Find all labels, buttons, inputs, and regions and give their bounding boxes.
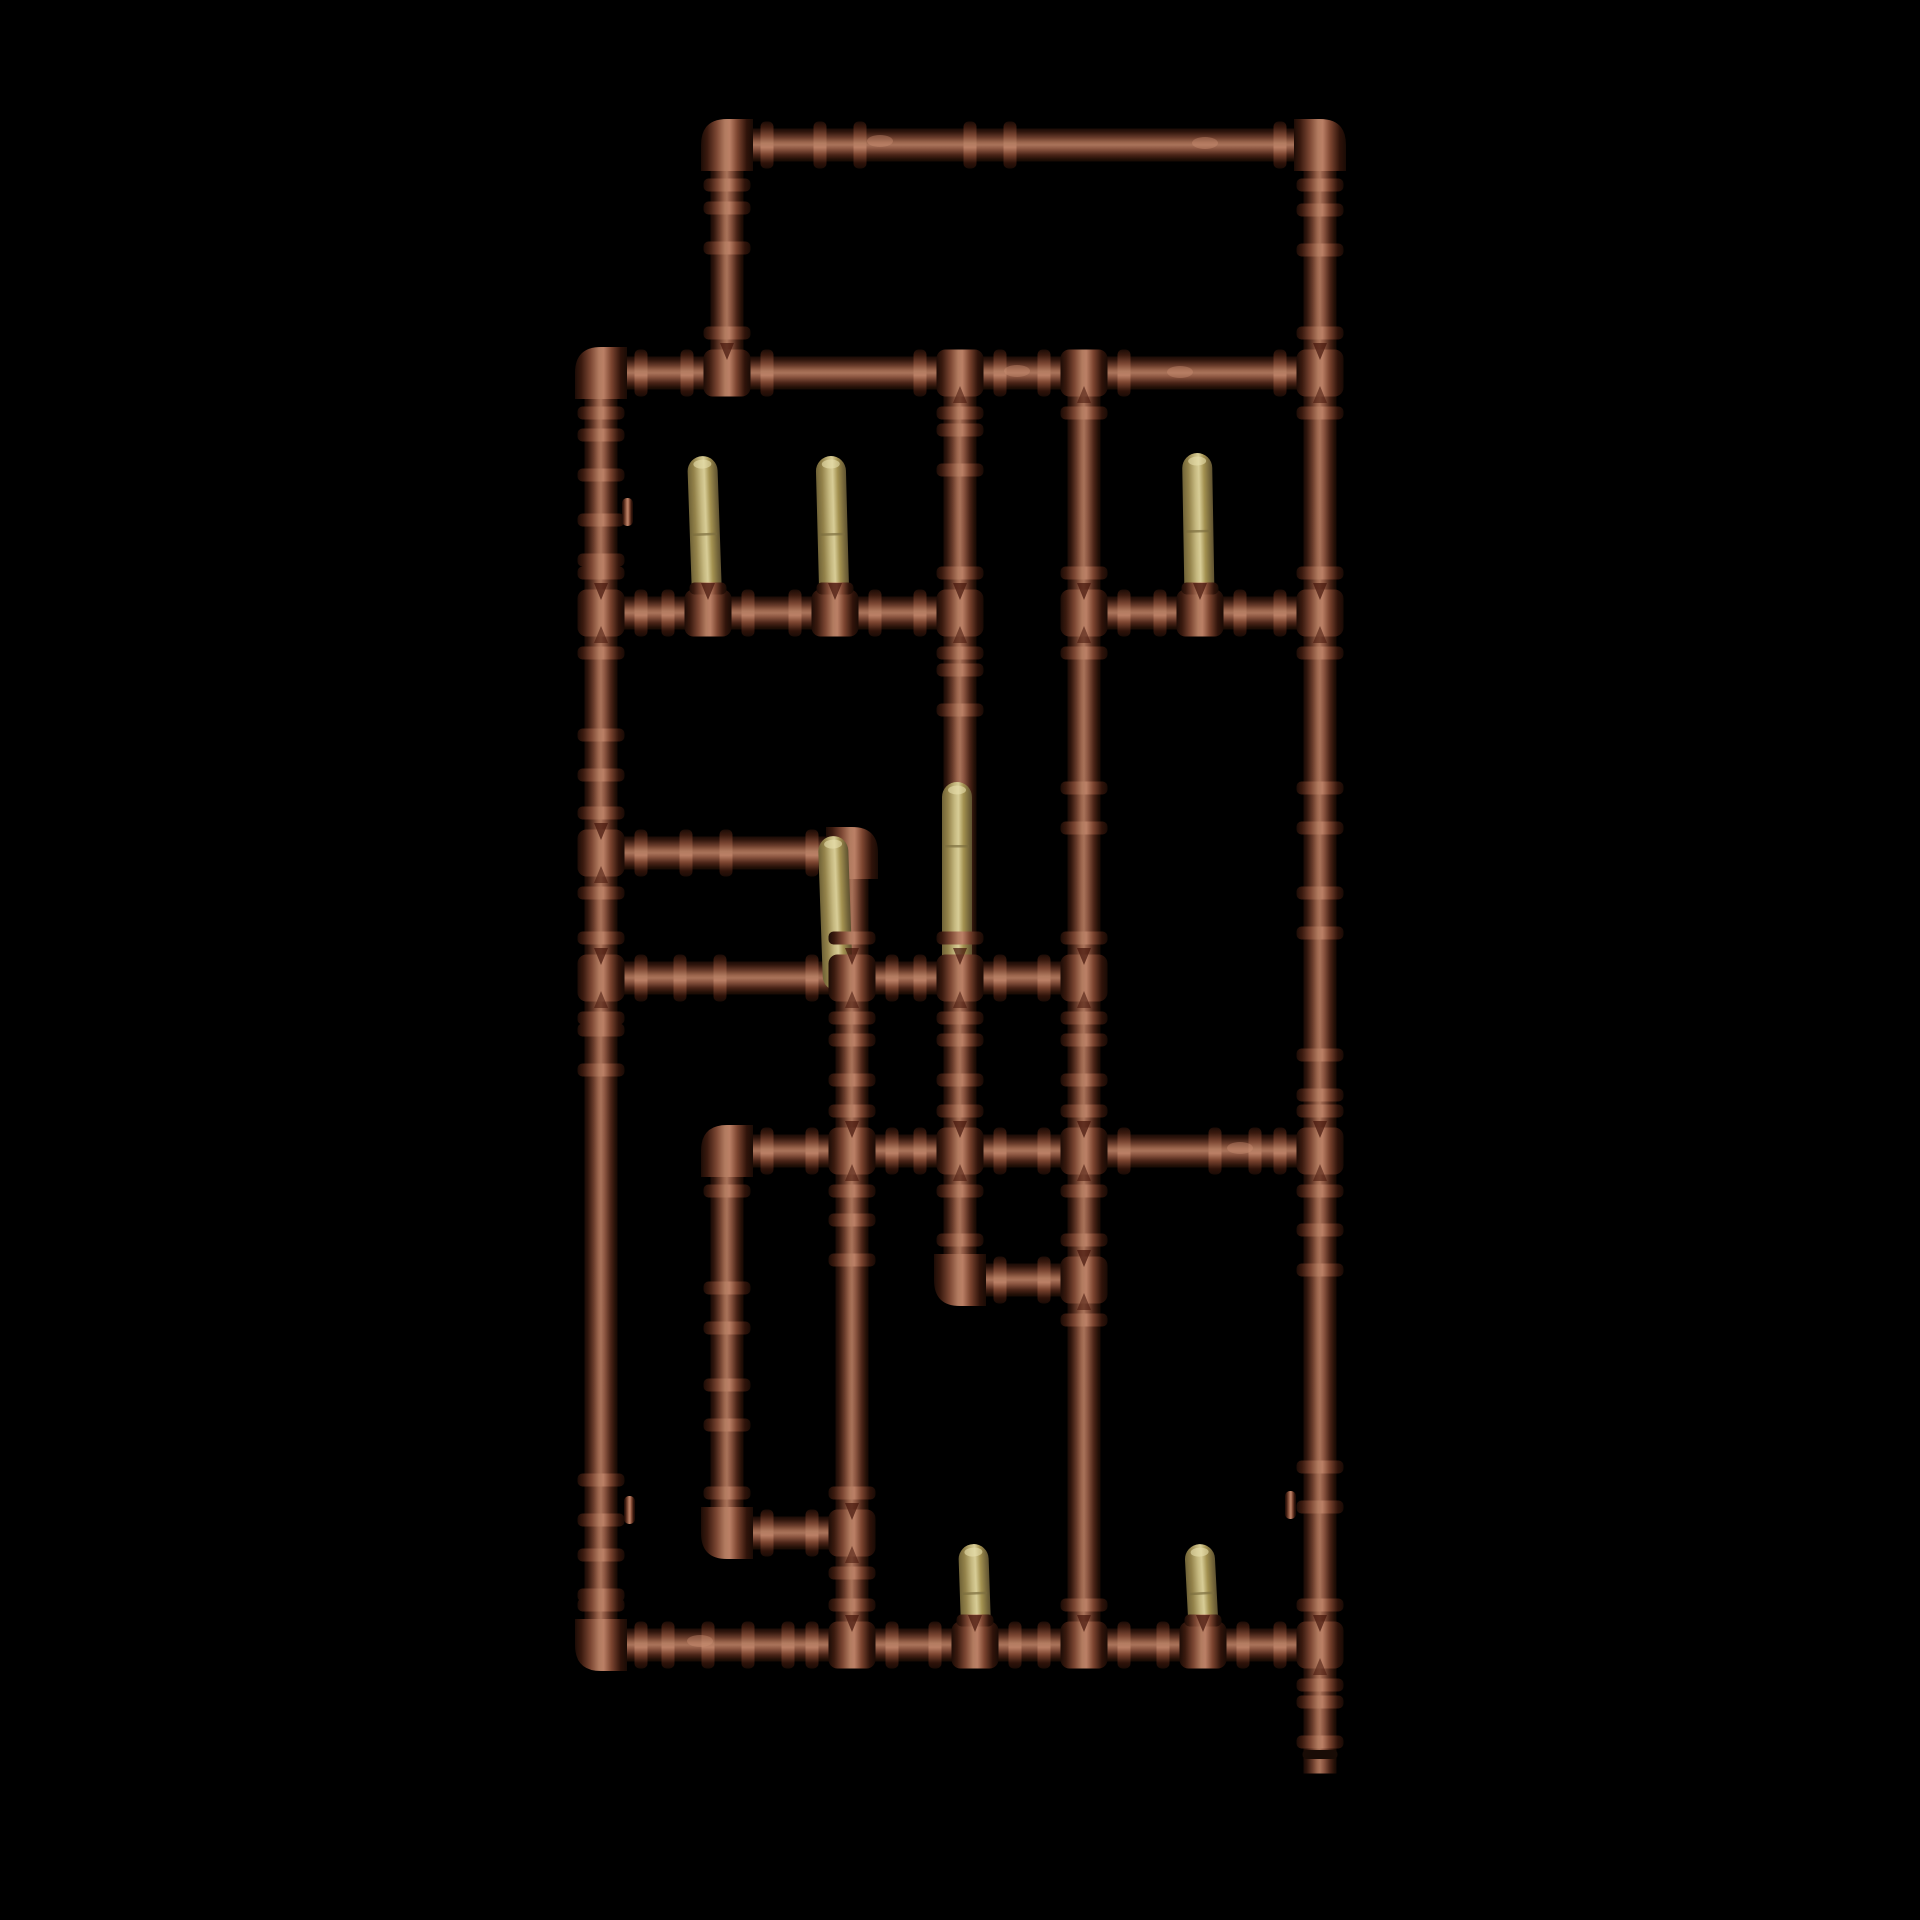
fitting-collar (1038, 1257, 1051, 1304)
fitting-collar (1274, 1128, 1287, 1175)
specular-highlight (1004, 365, 1030, 377)
fitting-collar (704, 202, 751, 215)
fitting-collar (937, 1234, 984, 1247)
fitting-collar (829, 1074, 876, 1087)
elbow-fitting (701, 119, 753, 171)
fitting-collar (662, 590, 675, 637)
fitting-collar (937, 424, 984, 437)
fitting-collar (1061, 1034, 1108, 1047)
fitting-collar (806, 1128, 819, 1175)
fitting-collar (1274, 350, 1287, 397)
fitting-collar (1297, 1501, 1344, 1514)
fitting-collar (937, 1012, 984, 1025)
brass-stub-seam (945, 845, 969, 848)
pipe-render-figure (0, 0, 1920, 1920)
fitting-collar (1297, 327, 1344, 340)
fitting-collar (578, 567, 625, 580)
fitting-collar (1297, 1224, 1344, 1237)
fitting-collar (578, 554, 625, 567)
fitting-collar (1038, 1128, 1051, 1175)
fitting-collar (578, 514, 625, 527)
fitting-collar (1118, 590, 1131, 637)
fitting-collar (578, 807, 625, 820)
fitting-collar (1061, 822, 1108, 835)
fitting-collar (1297, 1264, 1344, 1277)
fitting-collar (1061, 1074, 1108, 1087)
fitting-collar (1297, 1461, 1344, 1474)
fitting-collar (1297, 179, 1344, 192)
fitting-collar (1297, 1696, 1344, 1709)
fitting-collar (829, 1034, 876, 1047)
fitting-collar (937, 1185, 984, 1198)
fitting-collar (829, 1185, 876, 1198)
fitting-collar (1274, 1622, 1287, 1669)
fitting-collar (1061, 1599, 1108, 1612)
fitting-collar (1118, 1622, 1131, 1669)
fitting-collar (1209, 1128, 1222, 1175)
fitting-collar (886, 1128, 899, 1175)
fitting-collar (742, 1622, 755, 1669)
fitting-collar (761, 122, 774, 169)
fitting-collar (1061, 1185, 1108, 1198)
fitting-collar (789, 590, 802, 637)
fitting-collar (578, 429, 625, 442)
copper-pipe-vertical (1068, 357, 1101, 1662)
copper-pipe-vertical (585, 357, 618, 1662)
fitting-collar (1237, 1622, 1250, 1669)
fitting-collar (806, 830, 819, 877)
fitting-collar (937, 1074, 984, 1087)
fitting-collar (578, 1589, 625, 1602)
fitting-collar (578, 1474, 625, 1487)
fitting-collar (578, 729, 625, 742)
fitting-collar (1061, 932, 1108, 945)
fitting-collar (578, 1064, 625, 1077)
fitting-collar (829, 1012, 876, 1025)
fitting-collar (1297, 244, 1344, 257)
fitting-collar (854, 122, 867, 169)
fitting-collar (578, 407, 625, 420)
fitting-collar (994, 1257, 1007, 1304)
fitting-collar (829, 1567, 876, 1580)
fitting-collar (1061, 1012, 1108, 1025)
fitting-collar (704, 1282, 751, 1295)
fitting-collar (937, 1034, 984, 1047)
fitting-collar (869, 590, 882, 637)
fitting-collar (1038, 955, 1051, 1002)
fitting-collar (1038, 350, 1051, 397)
fitting-collar (994, 350, 1007, 397)
fitting-collar (1297, 1599, 1344, 1612)
fitting-collar (1118, 1128, 1131, 1175)
fitting-collar (1297, 1089, 1344, 1102)
fitting-collar (704, 1487, 751, 1500)
fitting-collar (1118, 350, 1131, 397)
fitting-collar (964, 122, 977, 169)
fitting-collar (806, 1510, 819, 1557)
brass-stub-cap (948, 786, 966, 795)
fitting-collar (1297, 567, 1344, 580)
fitting-collar (1061, 1314, 1108, 1327)
fitting-collar (704, 1185, 751, 1198)
fitting-collar (1274, 590, 1287, 637)
fitting-collar (578, 769, 625, 782)
fitting-collar (937, 464, 984, 477)
pipe-end-cap (1303, 1750, 1338, 1759)
fitting-collar (761, 1510, 774, 1557)
fitting-collar (1297, 647, 1344, 660)
fitting-collar (914, 350, 927, 397)
fitting-collar (829, 1105, 876, 1118)
fitting-collar (680, 830, 693, 877)
sprue-nub (624, 1496, 635, 1524)
fitting-collar (578, 932, 625, 945)
fitting-collar (937, 932, 984, 945)
fitting-collar (578, 887, 625, 900)
fitting-collar (1004, 122, 1017, 169)
fitting-collar (704, 1379, 751, 1392)
fitting-collar (914, 955, 927, 1002)
fitting-collar (806, 1622, 819, 1669)
copper-pipe-horizontal (711, 129, 1337, 162)
elbow-fitting (1294, 119, 1346, 171)
fitting-collar (578, 1024, 625, 1037)
fitting-collar (674, 955, 687, 1002)
fitting-collar (704, 242, 751, 255)
fitting-collar (914, 590, 927, 637)
fitting-collar (704, 1419, 751, 1432)
fitting-collar (1297, 204, 1344, 217)
fitting-collar (829, 1254, 876, 1267)
specular-highlight (687, 1635, 713, 1647)
fitting-collar (1061, 782, 1108, 795)
fitting-collar (704, 327, 751, 340)
specular-highlight (1227, 1142, 1253, 1154)
fitting-collar (714, 955, 727, 1002)
fitting-collar (937, 664, 984, 677)
fitting-collar (829, 1214, 876, 1227)
fitting-collar (1297, 1049, 1344, 1062)
fitting-collar (914, 1128, 927, 1175)
fitting-collar (1297, 927, 1344, 940)
fitting-collar (578, 1012, 625, 1025)
elbow-fitting (701, 1125, 753, 1177)
fitting-collar (681, 350, 694, 397)
fitting-collar (578, 1549, 625, 1562)
fitting-collar (806, 955, 819, 1002)
fitting-collar (761, 1128, 774, 1175)
fitting-collar (761, 350, 774, 397)
fitting-collar (1061, 1105, 1108, 1118)
fitting-collar (1038, 1622, 1051, 1669)
fitting-collar (1297, 782, 1344, 795)
fitting-collar (782, 1622, 795, 1669)
fitting-collar (635, 955, 648, 1002)
fitting-collar (635, 1622, 648, 1669)
elbow-fitting (701, 1507, 753, 1559)
fitting-collar (1009, 1622, 1022, 1669)
fitting-collar (994, 955, 1007, 1002)
brass-stub-seam (1186, 530, 1210, 533)
elbow-fitting (575, 1619, 627, 1671)
fitting-collar (937, 407, 984, 420)
elbow-fitting (934, 1254, 986, 1306)
fitting-collar (635, 350, 648, 397)
fitting-collar (704, 179, 751, 192)
fitting-collar (1154, 590, 1167, 637)
fitting-collar (1061, 407, 1108, 420)
fitting-collar (829, 932, 876, 945)
fitting-collar (704, 1322, 751, 1335)
specular-highlight (1192, 137, 1218, 149)
pipe-network-svg (0, 0, 1920, 1920)
fitting-collar (1274, 122, 1287, 169)
fitting-collar (1234, 590, 1247, 637)
sprue-nub (622, 498, 633, 526)
fitting-collar (829, 1599, 876, 1612)
fitting-collar (1297, 822, 1344, 835)
fitting-collar (1061, 647, 1108, 660)
fitting-collar (1297, 1185, 1344, 1198)
fitting-collar (937, 567, 984, 580)
specular-highlight (867, 135, 893, 147)
fitting-collar (929, 1622, 942, 1669)
fitting-collar (1157, 1622, 1170, 1669)
fitting-collar (578, 1514, 625, 1527)
fitting-collar (886, 955, 899, 1002)
fitting-collar (578, 647, 625, 660)
fitting-collar (635, 830, 648, 877)
fitting-collar (742, 590, 755, 637)
fitting-collar (1061, 567, 1108, 580)
fitting-collar (829, 1487, 876, 1500)
specular-highlight (1167, 366, 1193, 378)
fitting-collar (937, 647, 984, 660)
fitting-collar (578, 469, 625, 482)
fitting-collar (937, 1105, 984, 1118)
elbow-fitting (575, 347, 627, 399)
fitting-collar (1297, 887, 1344, 900)
fitting-collar (662, 1622, 675, 1669)
fitting-collar (1297, 407, 1344, 420)
fitting-collar (994, 1128, 1007, 1175)
fitting-collar (937, 704, 984, 717)
fitting-collar (635, 590, 648, 637)
fitting-collar (1297, 1736, 1344, 1749)
fitting-collar (814, 122, 827, 169)
fitting-collar (1297, 1679, 1344, 1692)
fitting-collar (1297, 1105, 1344, 1118)
fitting-collar (1061, 1234, 1108, 1247)
fitting-collar (720, 830, 733, 877)
sprue-nub (1285, 1491, 1296, 1519)
fitting-collar (886, 1622, 899, 1669)
